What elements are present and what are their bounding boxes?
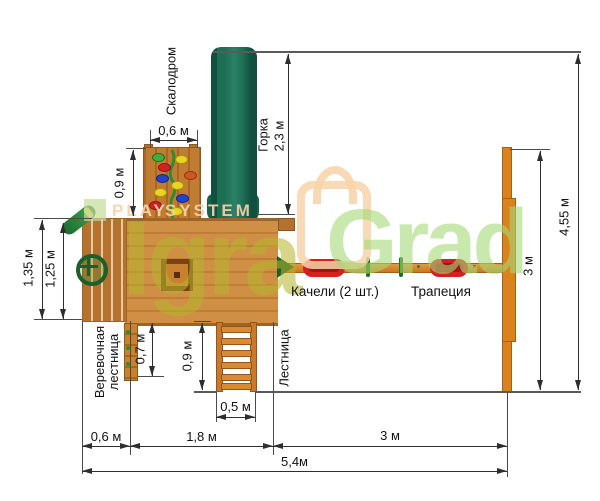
dimension-line-platform-section xyxy=(130,446,273,447)
climbing-hold xyxy=(154,188,167,197)
dimension-line-overall-depth xyxy=(578,54,579,390)
ground-line-right xyxy=(255,391,581,393)
value-depth-outer: 1,35 м xyxy=(21,249,36,287)
dimension-line-climb-width xyxy=(150,140,197,141)
value-climb-height: 0,9 м xyxy=(112,168,127,199)
dimension-line-slide-length xyxy=(288,54,289,214)
extension-tick xyxy=(197,130,198,148)
ladder-rung xyxy=(221,326,252,333)
value-ladder-drop: 0,9 м xyxy=(180,341,195,372)
value-left-section: 0,6 м xyxy=(82,429,130,444)
wheel-spoke xyxy=(78,265,98,268)
ladder-rung xyxy=(221,374,252,381)
climbing-hold xyxy=(184,171,197,180)
dimension-line-swing-beam xyxy=(540,151,541,390)
extension-tick xyxy=(510,149,550,150)
ladder-rung xyxy=(221,350,252,357)
value-swing-section: 3 м xyxy=(273,428,507,443)
value-total-width: 5,4м xyxy=(82,454,507,469)
climbing-hold xyxy=(158,163,171,172)
label-trapeze: Трапеция xyxy=(411,284,471,299)
value-swing-beam-span: 3 м xyxy=(521,256,536,276)
value-rope-ladder-drop: 0,7 м xyxy=(133,334,148,365)
extension-tick xyxy=(138,376,164,377)
value-overall-depth: 4,55 м xyxy=(557,198,572,236)
extension-tick xyxy=(34,218,92,219)
label-rope-ladder-line1: Веревочная xyxy=(92,326,107,398)
label-rope-ladder: Веревочная лестница xyxy=(93,326,121,398)
watermark-brand-grad: Grad xyxy=(326,196,525,288)
steering-wheel-icon xyxy=(76,254,108,286)
slide-chute xyxy=(211,47,257,222)
ladder-rung xyxy=(221,383,252,390)
climbing-hold xyxy=(175,155,188,164)
value-climb-width: 0,6 м xyxy=(150,123,197,138)
extension-tick xyxy=(126,148,146,149)
dimension-line-ladder-width xyxy=(216,417,255,418)
label-ladder: Лестница xyxy=(277,329,292,386)
ladder xyxy=(221,322,250,390)
dimension-line-left-section xyxy=(82,446,130,447)
label-climbing-wall: Скалодром xyxy=(164,47,179,115)
playground-top-view-diagram: PLAY SYSTEM Igra Grad Скалодром Горка 2,… xyxy=(0,0,600,501)
climbing-hold xyxy=(156,174,169,183)
climbing-hold xyxy=(152,153,165,162)
label-slide: Горка xyxy=(256,118,271,152)
dimension-line-climb-height xyxy=(133,150,134,216)
dimension-line-depth-inner xyxy=(63,223,64,319)
value-depth-inner: 1,25 м xyxy=(43,250,58,288)
ladder-rung xyxy=(221,362,252,369)
label-swings: Качели (2 шт.) xyxy=(291,284,379,299)
value-slide-length: 2,3 м xyxy=(272,121,287,152)
watermark-brand-igra: Igra xyxy=(122,206,299,311)
label-rope-ladder-line2: лестница xyxy=(106,334,121,390)
extension-tick xyxy=(256,214,295,215)
value-ladder-width: 0,5 м xyxy=(214,399,257,414)
extension-line xyxy=(82,321,83,474)
climbing-hold xyxy=(171,181,184,190)
ground-line-left xyxy=(194,391,216,393)
extension-tick xyxy=(194,321,211,322)
extension-tick xyxy=(34,319,82,320)
value-platform-section: 1,8 м xyxy=(130,429,273,444)
dimension-line-ladder-drop xyxy=(202,323,203,390)
top-reference-line xyxy=(213,51,581,53)
dimension-line-rope-ladder xyxy=(152,323,153,376)
extension-line xyxy=(507,392,508,477)
dimension-line-swing-section xyxy=(273,446,507,447)
ladder-rung xyxy=(221,338,252,345)
dimension-line-total-width xyxy=(82,471,507,472)
